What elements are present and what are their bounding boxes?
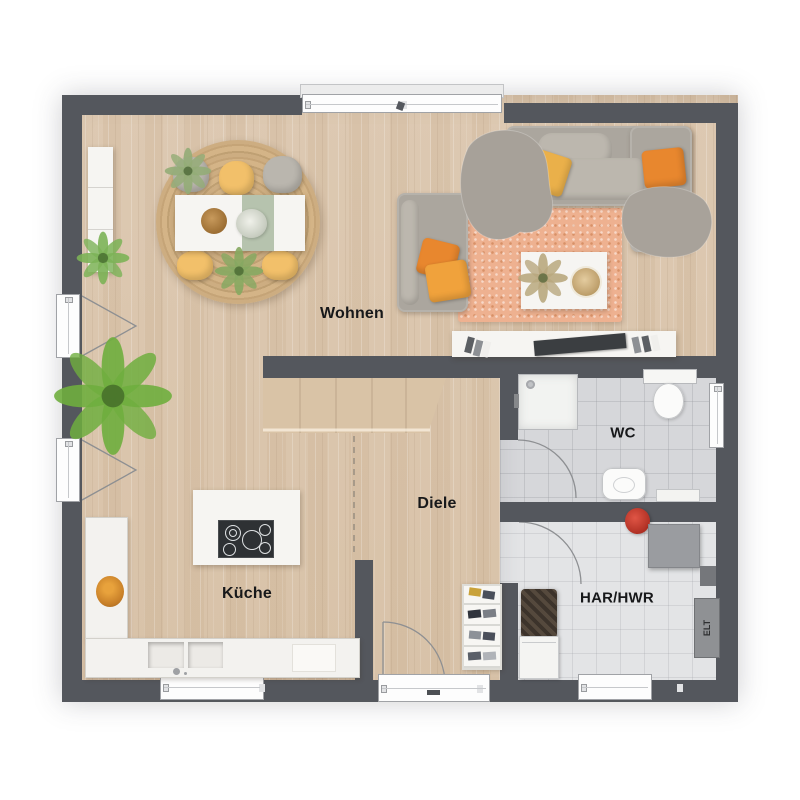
toilet-bowl <box>653 383 684 419</box>
shelf-divider <box>88 187 113 188</box>
label-diele: Diele <box>417 495 456 513</box>
fruit-bowl <box>96 576 124 607</box>
label-wc: WC <box>610 425 635 442</box>
utility-cabinet <box>648 524 700 568</box>
dining-chair-yellow-3 <box>262 251 298 280</box>
washer-seam <box>522 642 556 643</box>
sofa-left-backrest <box>401 200 419 305</box>
wall-har-left <box>500 583 518 680</box>
sink-faucet <box>173 668 180 675</box>
wall-top-left <box>62 95 302 115</box>
shower <box>518 374 578 430</box>
window-har <box>578 674 652 700</box>
dining-chair-grey-1 <box>173 157 209 192</box>
label-elt: ELT <box>702 620 712 636</box>
window-left-1 <box>56 294 80 358</box>
window-left-2 <box>56 438 80 502</box>
terrace-window <box>300 84 504 114</box>
shoes <box>468 652 482 661</box>
sideboard-shelf <box>88 147 113 272</box>
shoes <box>469 587 482 597</box>
cutting-board <box>292 644 336 672</box>
vacuum-red <box>625 508 650 534</box>
label-kueche: Küche <box>222 585 272 603</box>
coffee-table-tray <box>572 268 600 296</box>
shoe-rack <box>462 584 502 670</box>
laundry-basket <box>521 589 557 638</box>
burner <box>259 524 271 536</box>
wall-wc-left <box>500 378 518 440</box>
shoes <box>468 609 482 618</box>
burner <box>259 542 271 554</box>
shower-door-handle <box>514 394 519 408</box>
decor-flowers <box>236 209 267 238</box>
washbasin <box>602 468 646 500</box>
dining-chair-yellow-2 <box>177 251 213 280</box>
shoes <box>469 630 482 639</box>
wall-wc-har <box>500 502 716 522</box>
dining-chair-grey-2 <box>263 156 302 193</box>
wall-left <box>62 95 82 702</box>
pillow-orange-1 <box>641 147 687 189</box>
toilet-cistern <box>643 369 697 384</box>
sink-basin-2 <box>188 642 223 668</box>
dining-chair-yellow-1 <box>219 161 254 195</box>
wall-box <box>700 566 716 586</box>
entry-door-handle <box>427 690 440 695</box>
decor-bowl <box>201 208 227 234</box>
wc-shelf <box>656 489 700 502</box>
cooktop <box>218 520 274 558</box>
burner <box>223 543 236 556</box>
shelf-divider <box>88 229 113 230</box>
entry-door <box>378 674 490 702</box>
kitchen-island <box>193 490 300 565</box>
washbasin-bowl <box>613 477 635 493</box>
pillow-orange-3 <box>424 259 471 303</box>
window-wc <box>709 383 724 448</box>
wall-top-right <box>504 103 738 123</box>
label-har-hwr: HAR/HWR <box>580 590 654 607</box>
shower-drain <box>526 380 535 389</box>
washing-machine <box>519 636 559 679</box>
burner <box>225 525 241 541</box>
label-wohnen: Wohnen <box>320 305 384 323</box>
sink-basin-1 <box>148 642 184 668</box>
floor-plan: Wohnen Küche Diele WC HAR/HWR ELT <box>0 0 800 800</box>
